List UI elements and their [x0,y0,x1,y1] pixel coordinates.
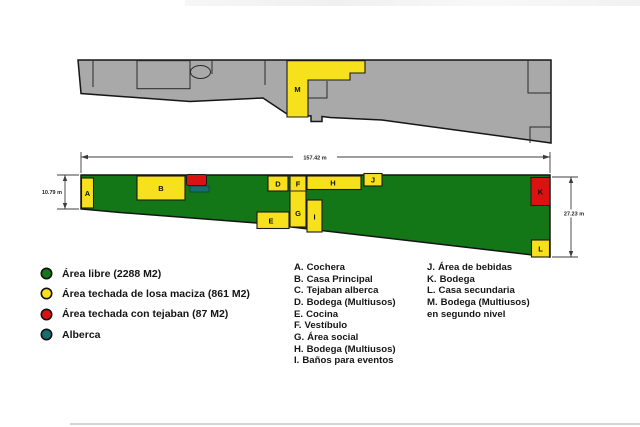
key-name: Cochera [307,262,345,273]
key-item-a: A.Cochera [294,262,396,274]
teal-circle-icon [40,328,53,341]
key-letter: K. [427,274,437,285]
dimension-left-height: 10.79 m [42,175,79,209]
dimension-right-height: 27.23 m [552,177,587,257]
key-item-i: I.Baños para eventos [294,355,396,367]
key-item-m: M.Bodega (Multiusos) [427,297,530,309]
key-letter: I. [294,355,299,366]
dim-right-height-label: 27.23 m [564,212,584,218]
legend-item-alberca: Alberca [40,328,250,341]
block-label-d: D [275,180,281,189]
key-item-m-continuation: en segundo nivel [427,309,530,321]
legend-label: Área techada de losa maciza (861 M2) [62,288,250,300]
key-item-j: J.Área de bebidas [427,262,530,274]
key-name: Área de bebidas [438,262,512,273]
yellow-circle-icon [40,287,53,300]
block-label-k: K [538,188,544,197]
key-name: Bodega (Multiusos) [307,297,396,308]
key-item-l: L.Casa secundaria [427,285,530,297]
floor-plan-diagram: M A B D F H J G I E K [0,0,640,427]
legend-label: Área libre (2288 M2) [62,268,161,280]
key-list-column-2: J.Área de bebidas K.Bodega L.Casa secund… [427,262,530,320]
legend-item-area-libre: Área libre (2288 M2) [40,267,250,280]
block-label-a: A [85,189,91,198]
key-name: Tejaban alberca [307,285,379,296]
key-item-f: F.Vestíbulo [294,320,396,332]
block-label-h: H [330,179,335,188]
key-letter: G. [294,332,304,343]
key-item-e: E.Cocina [294,309,396,321]
block-c-tejaban [187,175,207,186]
legend-item-tejaban: Área techada con tejaban (87 M2) [40,308,250,321]
block-label-l: L [538,245,543,254]
key-name: Casa Principal [307,274,373,285]
dimension-total-width: 157.42 m [81,152,550,173]
block-label-m: M [294,85,300,94]
key-letter: A. [294,262,304,273]
key-letter: F. [294,320,301,331]
legend-label: Área techada con tejaban (87 M2) [62,308,228,320]
block-label-b: B [158,184,164,193]
legend-item-losa-maciza: Área techada de losa maciza (861 M2) [40,287,250,300]
key-name: Baños para eventos [302,355,393,366]
key-name: Bodega (Multiusos) [307,344,396,355]
dim-left-height-label: 10.79 m [42,190,62,196]
key-letter: H. [294,344,304,355]
key-letter: C. [294,285,304,296]
key-name: Cocina [306,309,338,320]
site-plan: A B D F H J G I E K L [81,174,550,258]
red-circle-icon [40,308,53,321]
key-letter: B. [294,274,304,285]
key-letter: E. [294,309,303,320]
block-label-j: J [371,176,375,185]
key-letter: D. [294,297,304,308]
block-label-i: I [313,213,315,222]
legend-label: Alberca [62,329,101,341]
key-item-b: B.Casa Principal [294,274,396,286]
key-name: Área social [307,332,358,343]
block-alberca [190,186,209,192]
block-label-g: G [295,209,301,218]
key-item-k: K.Bodega [427,274,530,286]
green-circle-icon [40,267,53,280]
key-letter: J. [427,262,435,273]
key-item-c: C.Tejaban alberca [294,285,396,297]
block-label-f: F [296,180,301,189]
key-letter: L. [427,285,436,296]
block-label-e: E [268,217,273,226]
key-list-column-1: A.Cochera B.Casa Principal C.Tejaban alb… [294,262,396,367]
key-name: Bodega [440,274,475,285]
key-name: Casa secundaria [439,285,515,296]
key-letter: M. [427,297,438,308]
key-name: Bodega (Multiusos) [441,297,530,308]
key-item-d: D.Bodega (Multiusos) [294,297,396,309]
bottom-edge-artifact [70,423,640,425]
upper-roof-plan: M [78,60,551,143]
key-item-g: G.Área social [294,332,396,344]
dim-total-width-label: 157.42 m [303,156,326,162]
key-name: Vestíbulo [304,320,347,331]
top-edge-artifact [185,0,640,6]
key-item-h: H.Bodega (Multiusos) [294,344,396,356]
legend: Área libre (2288 M2) Área techada de los… [40,267,250,341]
